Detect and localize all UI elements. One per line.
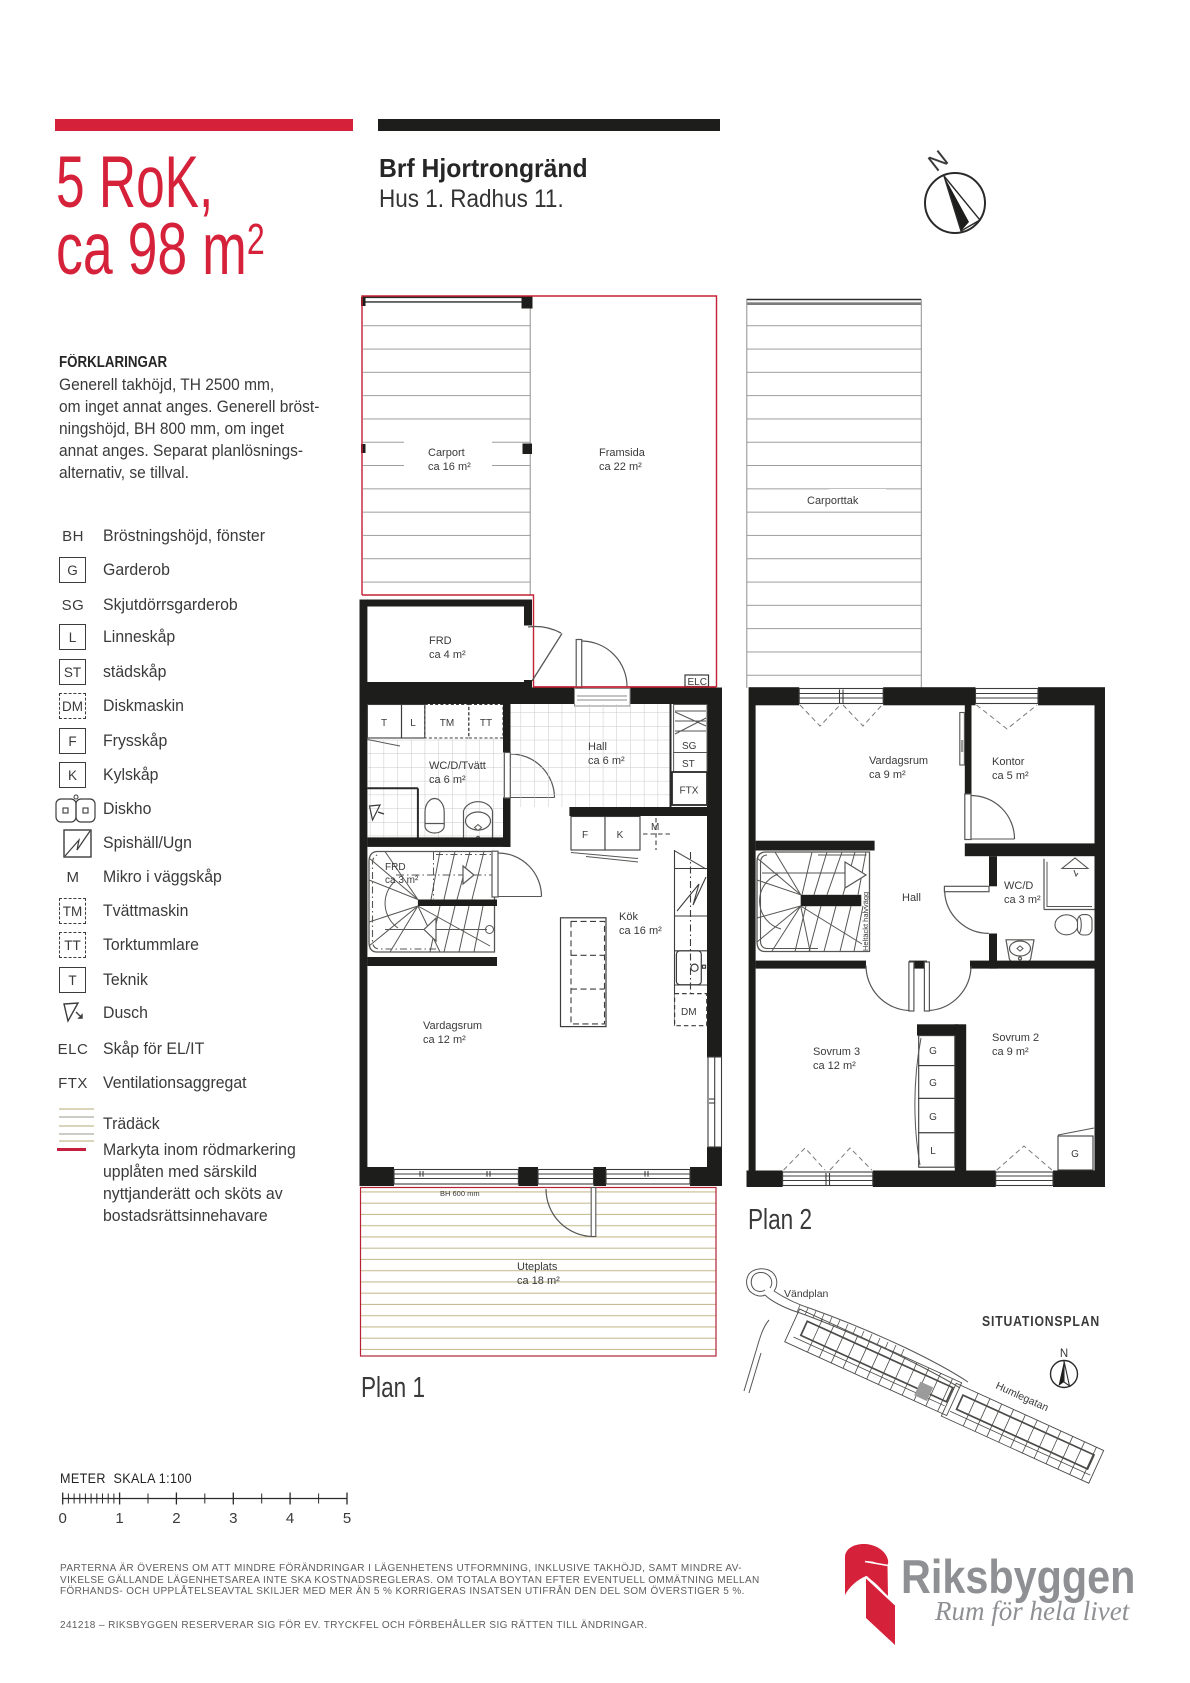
- svg-text:SITUATIONSPLAN: SITUATIONSPLAN: [982, 1314, 1100, 1330]
- svg-text:0: 0: [59, 1510, 67, 1527]
- svg-text:2: 2: [172, 1510, 180, 1527]
- svg-text:3: 3: [229, 1510, 237, 1527]
- svg-text:4: 4: [286, 1510, 294, 1527]
- svg-text:5: 5: [343, 1510, 351, 1527]
- svg-text:Vändplan: Vändplan: [784, 1288, 829, 1300]
- svg-text:N: N: [1060, 1348, 1068, 1360]
- svg-text:Humlegatan: Humlegatan: [994, 1380, 1051, 1414]
- svg-text:1: 1: [115, 1510, 123, 1527]
